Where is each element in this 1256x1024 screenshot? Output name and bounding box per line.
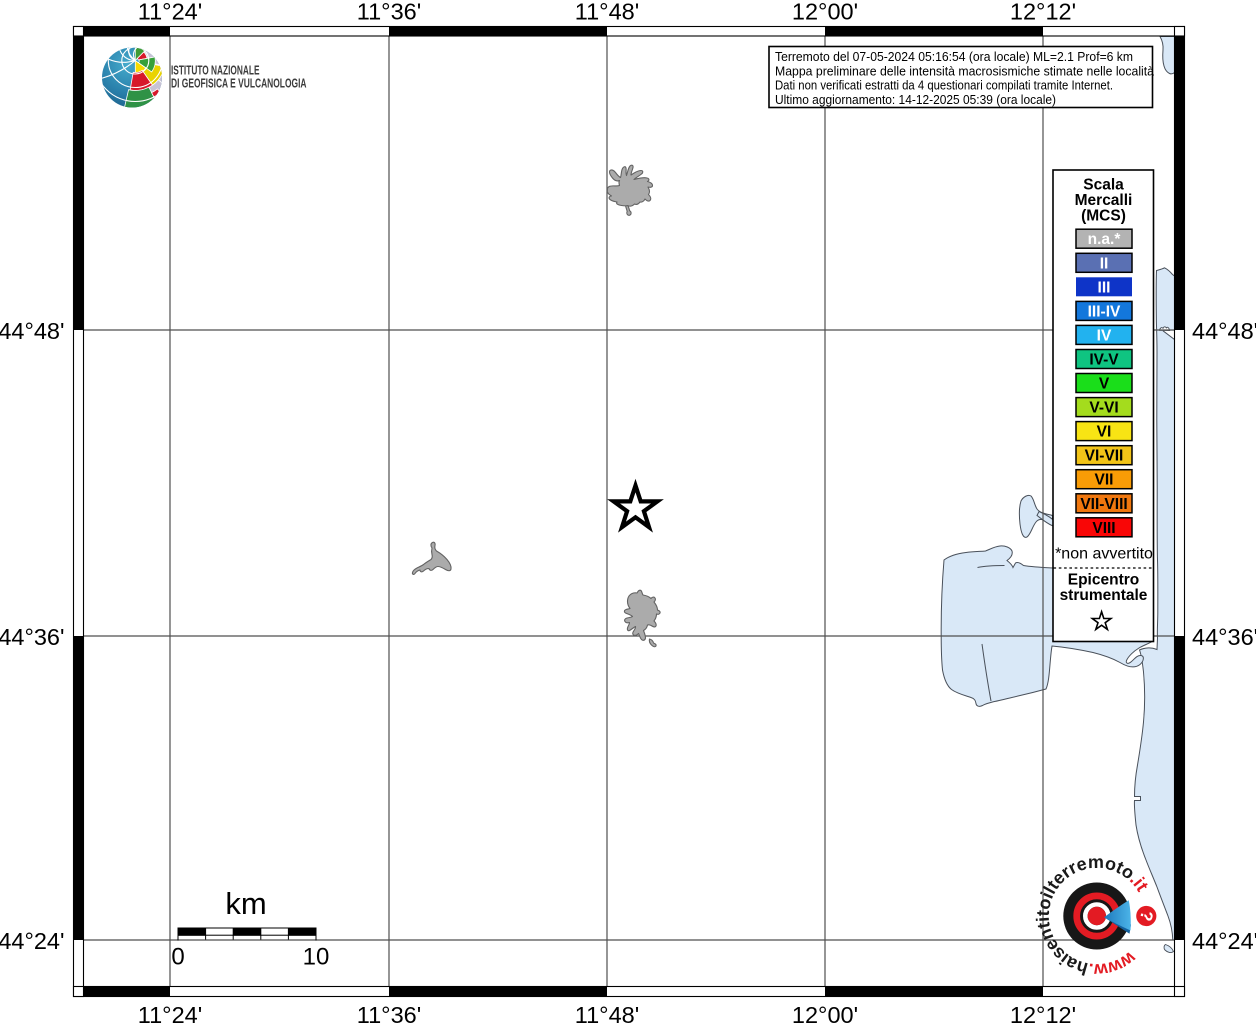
svg-text:Mercalli: Mercalli — [1075, 192, 1133, 209]
svg-text:*non avvertito: *non avvertito — [1055, 546, 1153, 563]
svg-text:12°00': 12°00' — [792, 1002, 858, 1024]
svg-text:(MCS): (MCS) — [1081, 208, 1126, 225]
svg-text:44°48': 44°48' — [0, 318, 65, 344]
svg-text:VI-VII: VI-VII — [1085, 448, 1124, 465]
svg-text:12°00': 12°00' — [792, 0, 858, 24]
svg-text:Terremoto del 07-05-2024 05:16: Terremoto del 07-05-2024 05:16:54 (ora l… — [775, 49, 1133, 64]
svg-text:44°48': 44°48' — [1192, 318, 1256, 344]
svg-text:0: 0 — [171, 944, 184, 971]
svg-text:Dati non verificati estratti d: Dati non verificati estratti da 4 questi… — [775, 78, 1113, 93]
svg-text:44°36': 44°36' — [1192, 624, 1256, 650]
svg-text:44°24': 44°24' — [1192, 928, 1256, 954]
svg-text:11°48': 11°48' — [575, 1002, 639, 1024]
svg-text:VII-VIII: VII-VIII — [1080, 496, 1127, 513]
svg-text:IV: IV — [1097, 327, 1112, 344]
svg-text:11°48': 11°48' — [575, 0, 639, 24]
svg-text:DI GEOFISICA E VULCANOLOGIA: DI GEOFISICA E VULCANOLOGIA — [171, 76, 307, 91]
svg-text:Epicentro: Epicentro — [1068, 572, 1139, 589]
svg-text:IV-V: IV-V — [1089, 352, 1119, 369]
svg-text:11°24': 11°24' — [138, 0, 202, 24]
svg-text:VII: VII — [1095, 472, 1114, 489]
svg-text:11°36': 11°36' — [357, 1002, 421, 1024]
svg-text:44°36': 44°36' — [0, 624, 65, 650]
svg-text:VI: VI — [1097, 424, 1112, 441]
svg-text:V: V — [1099, 376, 1110, 393]
svg-text:10: 10 — [303, 944, 330, 971]
svg-text:strumentale: strumentale — [1060, 587, 1148, 604]
svg-text:44°24': 44°24' — [0, 928, 65, 954]
svg-text:km: km — [225, 886, 266, 921]
svg-text:VIII: VIII — [1092, 520, 1115, 537]
svg-text:Mappa preliminare delle intens: Mappa preliminare delle intensità macros… — [775, 63, 1155, 78]
svg-text:Ultimo aggiornamento: 14-12-20: Ultimo aggiornamento: 14-12-2025 05:39 (… — [775, 92, 1056, 107]
svg-text:Scala: Scala — [1083, 177, 1124, 194]
svg-text:11°36': 11°36' — [357, 0, 421, 24]
svg-text:II: II — [1100, 255, 1109, 272]
svg-text:n.a.*: n.a.* — [1088, 231, 1122, 248]
svg-text:III: III — [1098, 279, 1111, 296]
svg-text:12°12': 12°12' — [1010, 0, 1076, 24]
svg-text:m: m — [1088, 852, 1104, 872]
svg-text:11°24': 11°24' — [138, 1002, 202, 1024]
svg-text:V-VI: V-VI — [1089, 400, 1118, 417]
svg-text:III-IV: III-IV — [1088, 303, 1121, 320]
svg-text:12°12': 12°12' — [1010, 1002, 1076, 1024]
